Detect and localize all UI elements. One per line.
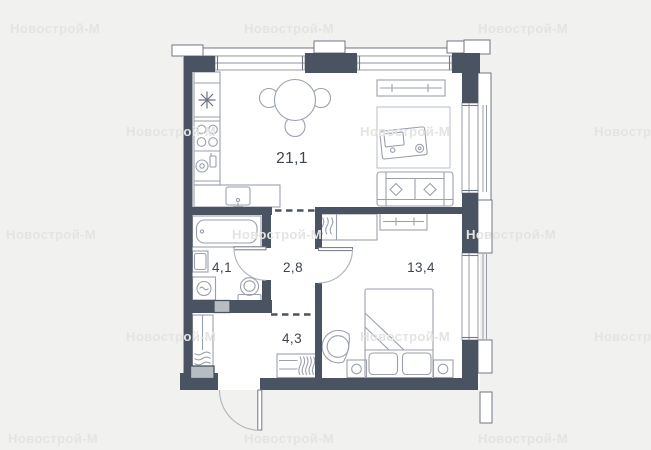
watermark-text: Новострой-М: [478, 21, 568, 36]
watermark-text: Новострой-М: [478, 431, 568, 446]
room-label-entry-hall: 4,3: [282, 331, 302, 346]
watermark-text: Новострой-М: [126, 124, 216, 139]
watermark-text: Новострой-М: [6, 227, 96, 242]
extractor-star-icon: [199, 92, 216, 109]
floor-plan-page: 21,1 4,1 2,8 13,4 4,3 Новострой-МНовостр…: [0, 0, 651, 450]
room-label-bedroom: 13,4: [407, 260, 435, 275]
watermark-text: Новострой-М: [126, 329, 216, 344]
window-living-side: [462, 103, 478, 193]
room-label-hallway: 2,8: [283, 260, 303, 275]
room-label-living-kitchen: 21,1: [276, 150, 308, 167]
window-living: [357, 56, 452, 70]
watermark-text: Новострой-М: [232, 227, 322, 242]
floor-plan: 21,1 4,1 2,8 13,4 4,3 Новострой-МНовостр…: [0, 0, 651, 450]
watermark-text: Новострой-М: [360, 124, 450, 139]
room-label-bathroom: 4,1: [212, 260, 232, 275]
shaft-entry: [191, 366, 215, 379]
watermark-text: Новострой-М: [594, 329, 651, 344]
watermark-text: Новострой-М: [8, 431, 98, 446]
window-kitchen: [215, 56, 305, 70]
shaft-bathroom: [214, 301, 230, 313]
watermark-text: Новострой-М: [10, 21, 100, 36]
watermark-text: Новострой-М: [244, 431, 334, 446]
watermark-text: Новострой-М: [594, 124, 651, 139]
watermark-text: Новострой-М: [466, 227, 556, 242]
watermark-text: Новострой-М: [244, 21, 334, 36]
facade-right: [478, 73, 492, 423]
window-bedroom: [462, 253, 478, 340]
watermark-text: Новострой-М: [360, 329, 450, 344]
